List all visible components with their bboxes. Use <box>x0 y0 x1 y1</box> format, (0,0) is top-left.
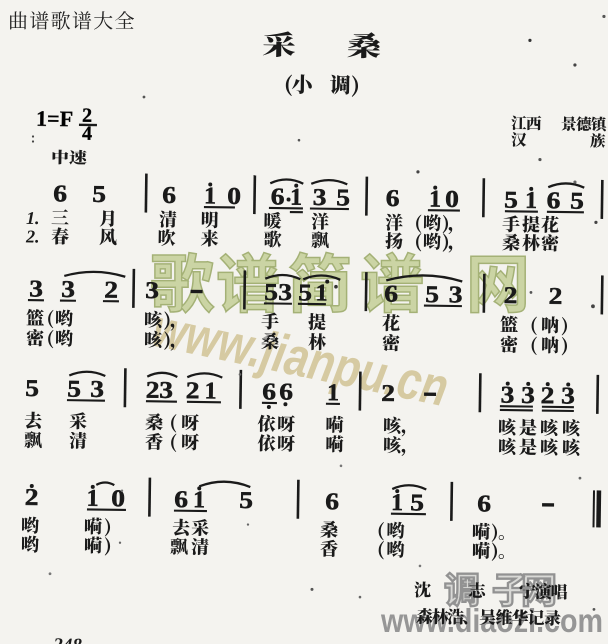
svg-text:5: 5 <box>92 180 106 207</box>
svg-text:6: 6 <box>325 488 339 515</box>
svg-text:5: 5 <box>504 186 518 213</box>
svg-text:1: 1 <box>204 183 216 209</box>
svg-text:1: 1 <box>193 487 205 513</box>
svg-text:6: 6 <box>162 181 176 208</box>
svg-text:5: 5 <box>67 375 81 402</box>
svg-text:5: 5 <box>336 184 350 211</box>
svg-text:3: 3 <box>312 184 326 211</box>
svg-text:1=F: 1=F <box>36 106 73 132</box>
svg-text:5: 5 <box>425 281 439 308</box>
svg-text:2: 2 <box>503 282 517 309</box>
svg-text:2: 2 <box>381 380 395 407</box>
svg-text:6: 6 <box>477 490 491 517</box>
svg-text:3: 3 <box>145 277 159 304</box>
svg-text:6: 6 <box>262 378 276 405</box>
svg-text:www.diaozi.com: www.diaozi.com <box>380 602 603 639</box>
svg-text:3: 3 <box>61 276 75 303</box>
svg-text:1: 1 <box>86 486 98 512</box>
svg-text:1: 1 <box>391 490 403 516</box>
svg-text:1: 1 <box>525 188 537 214</box>
svg-text:5: 5 <box>264 278 278 305</box>
svg-text:1.: 1. <box>26 208 40 228</box>
svg-text:6: 6 <box>546 187 560 214</box>
svg-text:5: 5 <box>570 187 584 214</box>
svg-text:3: 3 <box>90 375 104 402</box>
svg-text:6: 6 <box>53 180 67 207</box>
svg-text:1: 1 <box>315 280 327 306</box>
svg-text:6: 6 <box>270 183 284 210</box>
svg-text:6: 6 <box>174 486 188 513</box>
svg-text:1: 1 <box>327 380 339 406</box>
svg-text:5: 5 <box>239 487 253 514</box>
svg-text:1: 1 <box>290 185 302 211</box>
svg-text:4: 4 <box>82 123 92 145</box>
svg-text:5: 5 <box>298 279 312 306</box>
svg-text:2.: 2. <box>25 226 40 246</box>
svg-text:3: 3 <box>29 275 43 302</box>
svg-text:-248-: -248- <box>47 635 88 644</box>
svg-text:3: 3 <box>159 376 173 403</box>
svg-text:6: 6 <box>385 185 399 212</box>
svg-text:0: 0 <box>227 182 241 209</box>
svg-text:1: 1 <box>429 187 441 213</box>
svg-text:3: 3 <box>278 279 292 306</box>
svg-text:0: 0 <box>445 185 459 212</box>
svg-text:6: 6 <box>279 378 293 405</box>
svg-text:2: 2 <box>104 276 118 303</box>
svg-text:5: 5 <box>25 375 39 402</box>
svg-text:3: 3 <box>448 281 462 308</box>
svg-text:2: 2 <box>186 377 200 404</box>
svg-text:0: 0 <box>111 485 125 512</box>
svg-text:6: 6 <box>384 280 398 307</box>
svg-text:2: 2 <box>548 282 562 309</box>
svg-text:5: 5 <box>410 489 424 516</box>
svg-text:1: 1 <box>204 378 216 404</box>
svg-text:2: 2 <box>146 376 160 403</box>
